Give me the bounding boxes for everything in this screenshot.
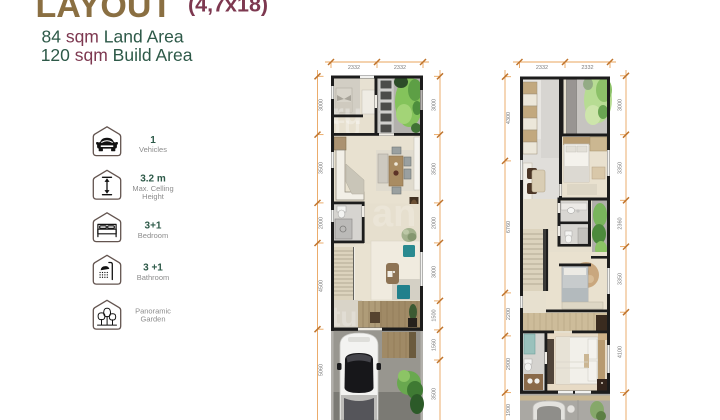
svg-text:3 +1: 3 +1 <box>143 263 163 274</box>
svg-text:3+1: 3+1 <box>145 221 162 232</box>
svg-text:3500: 3500 <box>319 162 325 174</box>
svg-text:2200: 2200 <box>506 308 512 320</box>
svg-text:Vehicles: Vehicles <box>139 145 167 154</box>
svg-text:4500: 4500 <box>319 280 325 292</box>
svg-text:2332: 2332 <box>536 65 548 71</box>
svg-text:4300: 4300 <box>506 112 512 124</box>
svg-text:Bathroom: Bathroom <box>137 273 170 282</box>
svg-text:6760: 6760 <box>506 221 512 233</box>
svg-text:2900: 2900 <box>506 358 512 370</box>
svg-text:1560: 1560 <box>432 339 438 351</box>
svg-text:3000: 3000 <box>432 99 438 111</box>
svg-text:3000: 3000 <box>618 99 624 111</box>
svg-text:tu: tu <box>331 301 357 332</box>
svg-text:2332: 2332 <box>348 65 360 71</box>
svg-text:120 sqm Build Area: 120 sqm Build Area <box>41 45 193 65</box>
svg-text:5060: 5060 <box>319 364 325 376</box>
svg-text:Bedroom: Bedroom <box>138 231 168 240</box>
svg-text:Height: Height <box>142 192 165 201</box>
svg-text:1900: 1900 <box>506 404 512 416</box>
svg-text:an: an <box>372 193 416 235</box>
svg-text:3350: 3350 <box>618 273 624 285</box>
svg-text:Garden: Garden <box>140 315 165 324</box>
svg-text:2332: 2332 <box>394 65 406 71</box>
svg-text:3500: 3500 <box>432 163 438 175</box>
svg-text:(4,7x18): (4,7x18) <box>188 0 268 17</box>
svg-text:3500: 3500 <box>432 388 438 400</box>
svg-text:1500: 1500 <box>432 309 438 321</box>
svg-text:3000: 3000 <box>319 99 325 111</box>
svg-text:2000: 2000 <box>319 217 325 229</box>
svg-text:2332: 2332 <box>581 65 593 71</box>
svg-text:3.2 m: 3.2 m <box>140 174 166 185</box>
svg-text:2000: 2000 <box>432 217 438 229</box>
svg-text:84 sqm Land Area: 84 sqm Land Area <box>42 26 184 46</box>
svg-text:3000: 3000 <box>432 266 438 278</box>
svg-text:TU: TU <box>331 116 360 141</box>
svg-text:2360: 2360 <box>618 217 624 229</box>
svg-text:LAYOUT: LAYOUT <box>36 0 173 25</box>
svg-text:4100: 4100 <box>618 346 624 358</box>
svg-text:3350: 3350 <box>618 162 624 174</box>
